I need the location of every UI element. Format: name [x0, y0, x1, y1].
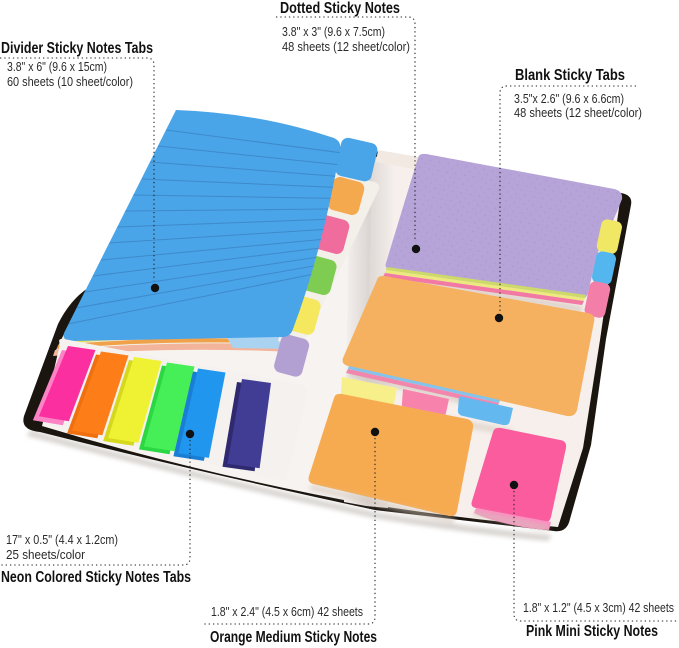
svg-text:Pink Mini Sticky Notes: Pink Mini Sticky Notes: [526, 623, 658, 640]
svg-text:17" x 0.5" (4.4 x 1.2cm): 17" x 0.5" (4.4 x 1.2cm): [6, 532, 118, 547]
svg-text:Orange Medium Sticky Notes: Orange Medium Sticky Notes: [210, 629, 377, 646]
svg-text:1.8" x 1.2" (4.5 x 3cm) 42 sh: 1.8" x 1.2" (4.5 x 3cm) 42 sheets: [523, 600, 674, 615]
svg-text:Blank Sticky Tabs: Blank Sticky Tabs: [515, 67, 625, 84]
svg-text:48 sheets (12 sheet/color): 48 sheets (12 sheet/color): [282, 39, 410, 54]
svg-text:3.8" x 3" (9.6 x 7.5cm): 3.8" x 3" (9.6 x 7.5cm): [282, 24, 385, 39]
svg-text:48 sheets (12 sheet/color): 48 sheets (12 sheet/color): [514, 105, 642, 120]
svg-text:3.8" x 6" (9.6 x 15cm): 3.8" x 6" (9.6 x 15cm): [7, 59, 107, 74]
svg-text:Dotted Sticky Notes: Dotted Sticky Notes: [280, 0, 400, 17]
svg-text:Divider Sticky Notes Tabs: Divider Sticky Notes Tabs: [1, 40, 153, 57]
svg-text:3.5"x 2.6" (9.6 x 6.6cm): 3.5"x 2.6" (9.6 x 6.6cm): [514, 91, 624, 106]
svg-text:60 sheets (10 sheet/color): 60 sheets (10 sheet/color): [7, 74, 133, 89]
svg-text:Neon Colored Sticky Notes Tabs: Neon Colored Sticky Notes Tabs: [1, 569, 191, 586]
svg-text:1.8" x 2.4" (4.5 x 6cm) 42 sh: 1.8" x 2.4" (4.5 x 6cm) 42 sheets: [211, 604, 363, 619]
svg-text:25 sheets/color: 25 sheets/color: [6, 547, 86, 562]
